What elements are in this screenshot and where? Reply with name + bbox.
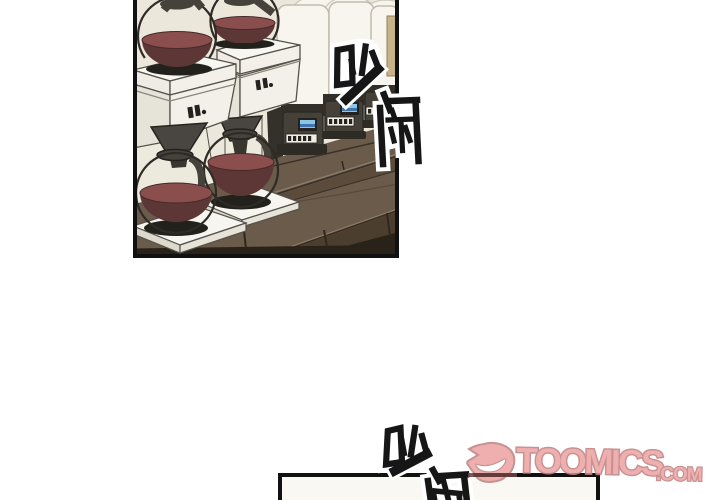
svg-text:.COM: .COM: [656, 464, 702, 486]
svg-text:TOOMICS: TOOMICS: [516, 441, 664, 483]
